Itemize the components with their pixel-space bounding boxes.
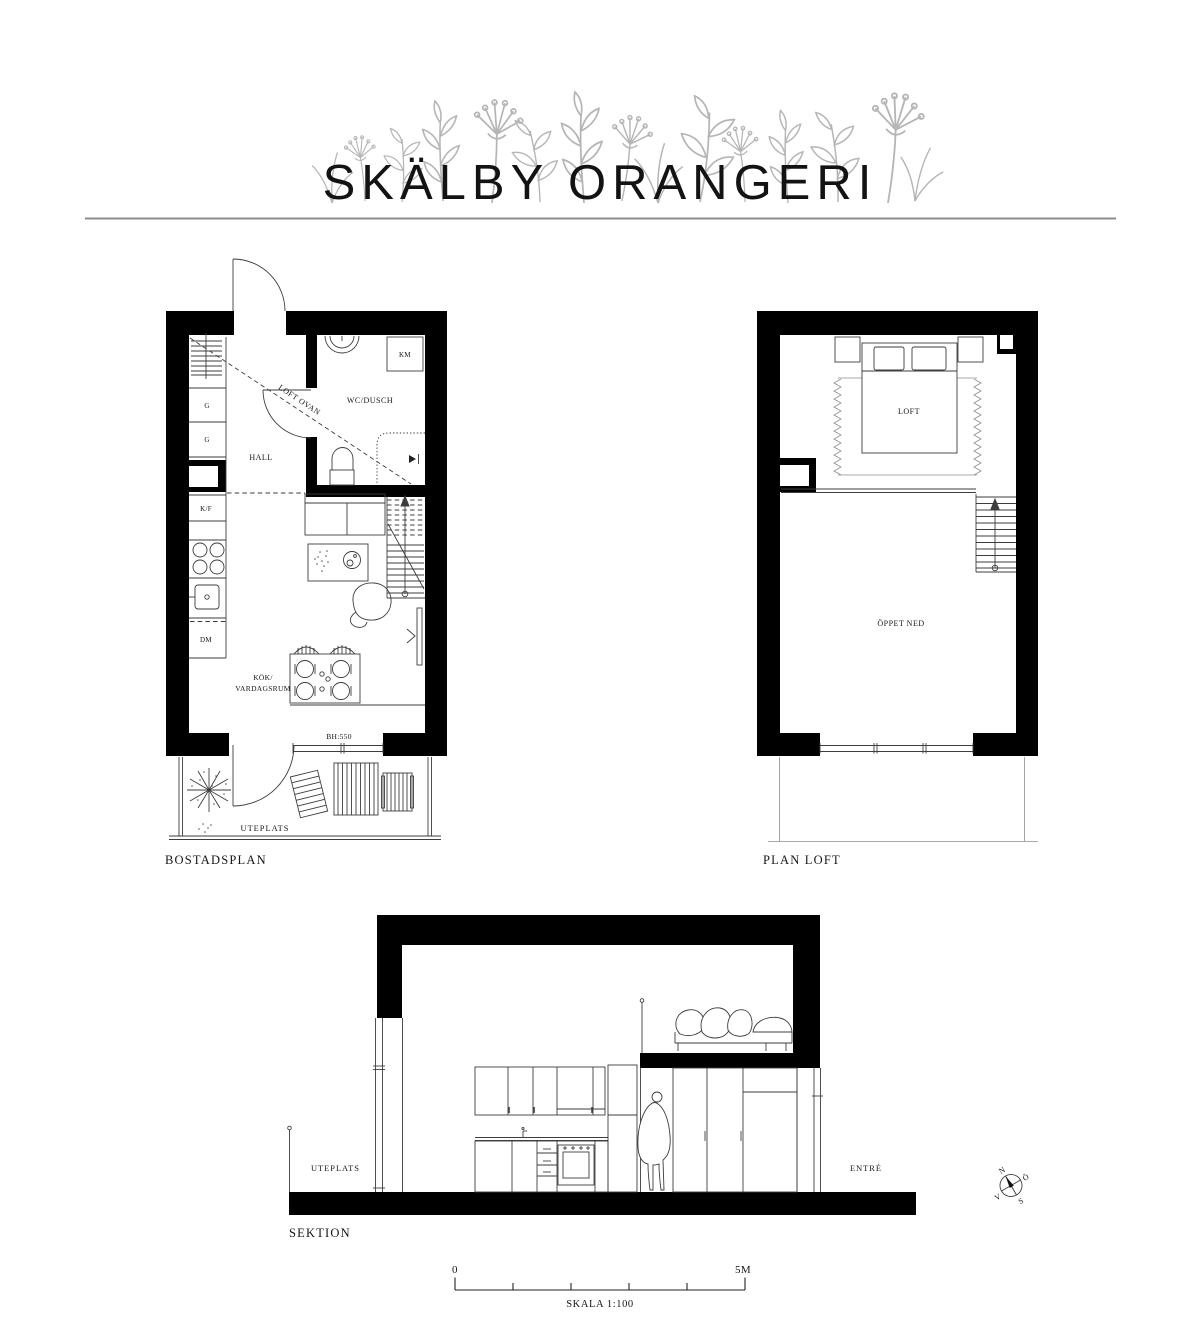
dining-table bbox=[290, 654, 360, 703]
room-label-oppet-ned: ÖPPET NED bbox=[877, 619, 924, 628]
pillow-left bbox=[874, 347, 904, 370]
compass-east: Ö bbox=[1021, 1172, 1031, 1183]
glazed-wall-left bbox=[373, 1018, 403, 1192]
pillow-3 bbox=[728, 1010, 752, 1037]
pillow-1 bbox=[676, 1010, 704, 1036]
chevron-right-icon bbox=[407, 629, 415, 643]
drawing-canvas: SKÄLBY ORANGERI bbox=[0, 0, 1200, 1318]
terrace-ghost bbox=[768, 757, 1038, 842]
tree bbox=[187, 768, 231, 833]
fixture-label-g1: G bbox=[204, 402, 209, 410]
shower-valve-icon bbox=[409, 455, 416, 463]
wardrobe-elevation bbox=[673, 1068, 797, 1192]
architectural-sheet: SKÄLBY ORANGERI bbox=[0, 0, 1200, 1318]
stairs-up bbox=[387, 496, 425, 598]
outdoor-chair bbox=[382, 773, 414, 811]
caption-bostadsplan: BOSTADSPLAN bbox=[165, 853, 267, 867]
pillow-2 bbox=[701, 1008, 731, 1038]
sofa bbox=[305, 494, 385, 535]
wall-radiator bbox=[417, 608, 422, 665]
compass-north: N bbox=[997, 1165, 1007, 1176]
scale-bar-ticks bbox=[455, 1278, 745, 1291]
scale-start-label: 0 bbox=[452, 1264, 458, 1276]
stairs-loft bbox=[976, 494, 1016, 572]
wc-dusch-room: KM WC/DUSCH bbox=[263, 336, 425, 485]
plant-pot bbox=[314, 550, 329, 572]
wall-nook bbox=[189, 466, 218, 487]
compass-rose: N Ö S V bbox=[983, 1156, 1040, 1215]
caption-sektion: SEKTION bbox=[289, 1226, 351, 1240]
terrace-door bbox=[233, 745, 294, 806]
faucet-icon bbox=[522, 1127, 527, 1138]
toilet bbox=[330, 448, 354, 486]
person-figure bbox=[638, 1092, 670, 1190]
south-window bbox=[293, 743, 383, 754]
dining-chair-backs bbox=[294, 645, 355, 654]
fixture-label-dm: DM bbox=[200, 636, 212, 644]
room-label-wc-dusch: WC/DUSCH bbox=[347, 396, 393, 405]
scale-end-label: 5M bbox=[735, 1264, 751, 1276]
compass-west: V bbox=[993, 1192, 1003, 1203]
nightstand-left bbox=[835, 337, 860, 362]
room-label-vardagsrum: VARDAGSRUM bbox=[235, 684, 290, 693]
fixture-label-g2: G bbox=[204, 436, 209, 444]
kitchen-counter bbox=[189, 337, 226, 658]
nightstand-right bbox=[958, 337, 983, 362]
scale-bar: 0 5M SKALA 1:100 bbox=[452, 1264, 751, 1310]
ground-post bbox=[288, 1126, 292, 1192]
fixture-label-kf: K/F bbox=[200, 505, 212, 513]
bed-section bbox=[675, 1008, 792, 1051]
armchair bbox=[350, 583, 391, 628]
duvet bbox=[753, 1017, 792, 1032]
plan-loft-drawing: LOFT ÖPPET NED bbox=[757, 311, 1038, 867]
lounge-chair bbox=[290, 770, 327, 818]
tall-cabinet bbox=[608, 1065, 637, 1192]
room-label-kok: KÖK/ bbox=[253, 673, 273, 682]
shower bbox=[377, 433, 425, 485]
scale-caption: SKALA 1:100 bbox=[566, 1299, 634, 1310]
loft-south-window bbox=[820, 743, 973, 754]
room-label-loft: LOFT bbox=[898, 407, 920, 416]
annotation-bh550: BH:550 bbox=[326, 732, 352, 741]
caption-plan-loft: PLAN LOFT bbox=[763, 853, 841, 867]
header: SKÄLBY ORANGERI bbox=[85, 91, 1116, 218]
wc-sink bbox=[325, 336, 359, 353]
oven bbox=[558, 1145, 594, 1185]
label-entre: ENTRÉ bbox=[850, 1163, 882, 1173]
wall-nook-loft bbox=[780, 465, 809, 486]
pillow-right bbox=[912, 347, 946, 370]
room-label-hall: HALL bbox=[249, 453, 272, 462]
deck-bench bbox=[334, 763, 378, 815]
kitchen-elevation bbox=[475, 1065, 637, 1192]
bed: LOFT bbox=[835, 337, 983, 453]
label-uteplats-section: UTEPLATS bbox=[311, 1164, 360, 1173]
page-title: SKÄLBY ORANGERI bbox=[323, 156, 878, 210]
entry-door bbox=[233, 259, 285, 311]
sektion-structure bbox=[289, 915, 916, 1215]
glazed-entry-right bbox=[797, 1068, 823, 1192]
uteplats-terrace: UTEPLATS bbox=[169, 745, 441, 840]
sektion-drawing: UTEPLATS ENTRÉ SEKTION bbox=[288, 915, 916, 1240]
coffee-table bbox=[308, 544, 368, 581]
room-label-uteplats: UTEPLATS bbox=[241, 824, 290, 833]
wall-notch bbox=[1000, 335, 1013, 349]
fixture-label-km: KM bbox=[399, 351, 411, 359]
bostadsplan-drawing: G G K/F DM KM bbox=[165, 259, 447, 867]
compass-south: S bbox=[1017, 1196, 1026, 1206]
